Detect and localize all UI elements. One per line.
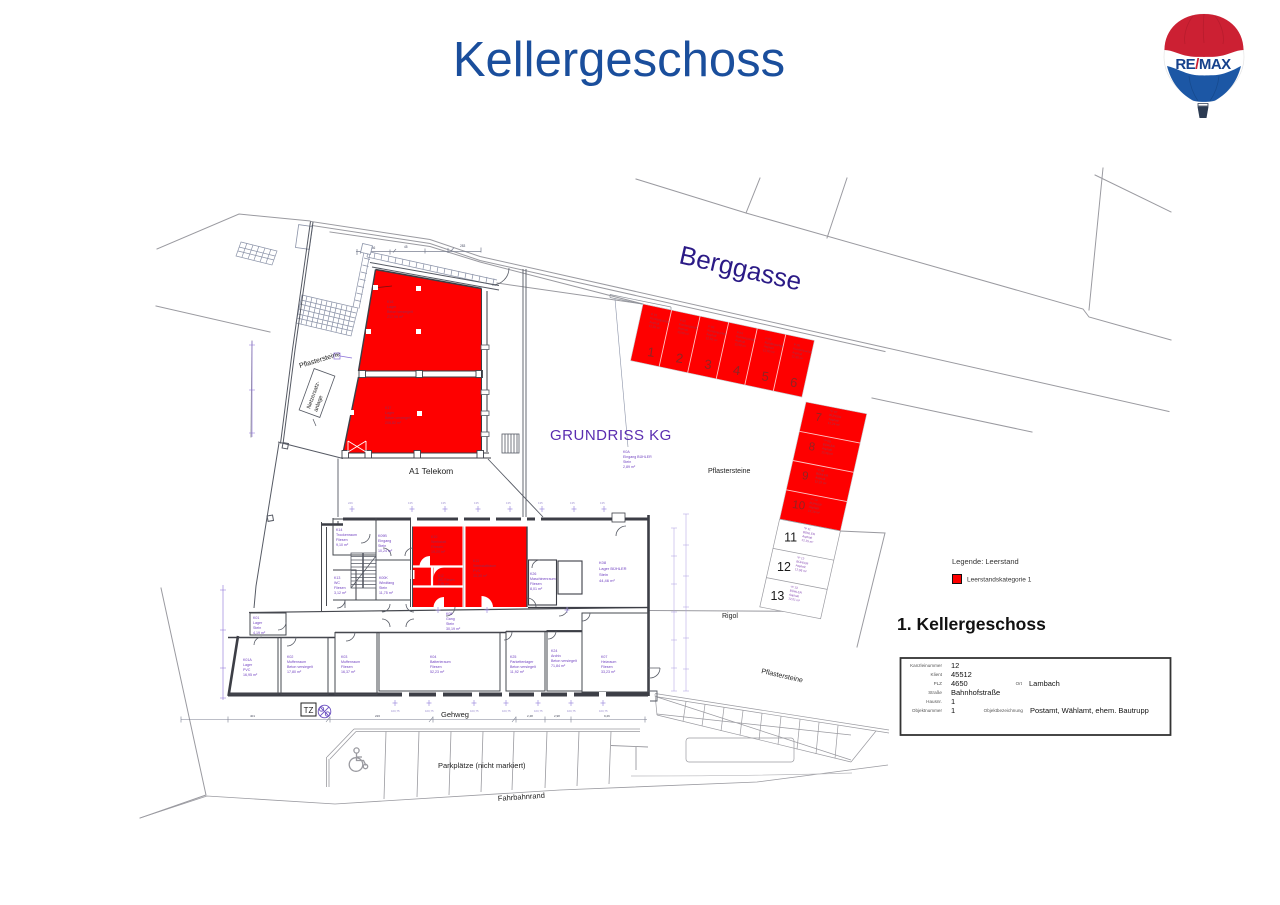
svg-text:Bahnhofstraße: Bahnhofstraße bbox=[951, 688, 1000, 697]
svg-text:12: 12 bbox=[777, 560, 791, 574]
svg-text:1: 1 bbox=[951, 697, 955, 706]
svg-text:10,24 m²: 10,24 m² bbox=[378, 549, 393, 553]
svg-text:Stein: Stein bbox=[446, 622, 454, 626]
svg-text:283: 283 bbox=[460, 244, 466, 248]
svg-text:Trockenraum: Trockenraum bbox=[336, 533, 357, 537]
svg-text:Fliesen: Fliesen bbox=[334, 586, 346, 590]
svg-text:Beton versiegelt: Beton versiegelt bbox=[551, 659, 577, 663]
svg-text:Stein: Stein bbox=[379, 586, 387, 590]
svg-text:3,12 m²: 3,12 m² bbox=[334, 591, 347, 595]
svg-text:Muffenraum: Muffenraum bbox=[341, 660, 360, 664]
svg-text:226: 226 bbox=[375, 714, 380, 718]
svg-text:K09B: K09B bbox=[378, 534, 387, 538]
svg-text:206,82 m²: 206,82 m² bbox=[385, 421, 402, 425]
svg-text:Leerstandskategorie 1: Leerstandskategorie 1 bbox=[967, 577, 1032, 584]
svg-text:17,80 m²: 17,80 m² bbox=[287, 670, 302, 674]
svg-text:45512: 45512 bbox=[951, 670, 972, 679]
svg-text:K05: K05 bbox=[446, 612, 452, 616]
svg-text:Pflastersteine: Pflastersteine bbox=[708, 468, 751, 475]
svg-text:Legende: Leerstand: Legende: Leerstand bbox=[952, 557, 1019, 566]
svg-text:Maschinenraum: Maschinenraum bbox=[530, 577, 556, 581]
svg-text:Werkstattraum: Werkstattraum bbox=[473, 564, 496, 568]
svg-text:13: 13 bbox=[770, 589, 784, 603]
svg-text:4,19 m²: 4,19 m² bbox=[253, 631, 266, 635]
svg-text:Parkplätze (nicht markiert): Parkplätze (nicht markiert) bbox=[438, 761, 526, 770]
svg-text:11,75 m²: 11,75 m² bbox=[379, 591, 394, 595]
svg-text:Gehweg: Gehweg bbox=[441, 710, 469, 719]
svg-text:16,95 m²: 16,95 m² bbox=[243, 673, 258, 677]
svg-text:45: 45 bbox=[404, 245, 408, 249]
svg-text:10: 10 bbox=[791, 499, 805, 513]
svg-text:Beton versiegelt: Beton versiegelt bbox=[287, 665, 313, 669]
svg-text:100,75: 100,75 bbox=[502, 709, 511, 713]
svg-text:Beton versiegelt: Beton versiegelt bbox=[385, 416, 411, 420]
svg-text:100,75: 100,75 bbox=[391, 709, 400, 713]
svg-text:Eingang BÜHLER: Eingang BÜHLER bbox=[623, 455, 652, 459]
svg-text:Ort: Ort bbox=[1016, 681, 1023, 686]
svg-text:Stein: Stein bbox=[253, 626, 261, 630]
svg-text:Lager: Lager bbox=[387, 305, 397, 309]
svg-text:Lager BÜHLER: Lager BÜHLER bbox=[599, 566, 627, 571]
svg-text:11: 11 bbox=[784, 531, 797, 545]
svg-text:11,92 m²: 11,92 m² bbox=[510, 670, 525, 674]
svg-text:Postamt, Wählamt, ehem. Bautru: Postamt, Wählamt, ehem. Bautrupp bbox=[1030, 706, 1149, 715]
svg-text:135: 135 bbox=[441, 501, 446, 505]
svg-text:Fliesen: Fliesen bbox=[430, 665, 442, 669]
svg-text:A1 Telekom: A1 Telekom bbox=[409, 466, 453, 476]
svg-text:Stein: Stein bbox=[378, 544, 386, 548]
svg-text:100,75: 100,75 bbox=[534, 709, 543, 713]
svg-text:Kellergeschoss: Kellergeschoss bbox=[453, 33, 785, 87]
svg-text:TZ: TZ bbox=[304, 706, 314, 715]
svg-text:PVC: PVC bbox=[473, 569, 481, 573]
svg-text:Archiv: Archiv bbox=[551, 654, 561, 658]
svg-text:K03: K03 bbox=[341, 655, 347, 659]
svg-text:Fliesen: Fliesen bbox=[601, 665, 613, 669]
svg-text:52,23 m²: 52,23 m² bbox=[430, 670, 445, 674]
svg-text:Objektnummer: Objektnummer bbox=[912, 708, 943, 713]
svg-text:30,19 m²: 30,19 m² bbox=[446, 627, 461, 631]
svg-text:401: 401 bbox=[250, 714, 255, 718]
svg-text:Rigol: Rigol bbox=[722, 613, 738, 620]
svg-text:100,75: 100,75 bbox=[567, 709, 576, 713]
svg-text:Muffenraum: Muffenraum bbox=[287, 660, 306, 664]
svg-text:Windfang: Windfang bbox=[379, 581, 394, 585]
svg-text:K11: K11 bbox=[473, 559, 479, 563]
svg-text:Lager: Lager bbox=[243, 663, 253, 667]
svg-text:Beton versiegelt: Beton versiegelt bbox=[387, 310, 413, 314]
svg-text:135: 135 bbox=[570, 501, 575, 505]
svg-text:K16: K16 bbox=[387, 300, 393, 304]
svg-text:135: 135 bbox=[474, 501, 479, 505]
svg-text:1. Kellergeschoss: 1. Kellergeschoss bbox=[897, 614, 1046, 634]
svg-text:Werkstatt: Werkstatt bbox=[431, 540, 446, 544]
svg-text:8,01 m²: 8,01 m² bbox=[530, 587, 543, 591]
svg-text:Lager: Lager bbox=[253, 621, 263, 625]
svg-text:K25: K25 bbox=[510, 655, 516, 659]
svg-text:33,30 m²: 33,30 m² bbox=[473, 574, 488, 578]
svg-text:44,46 m²: 44,46 m² bbox=[599, 578, 615, 583]
svg-text:Straße: Straße bbox=[928, 690, 942, 695]
svg-text:1: 1 bbox=[951, 706, 955, 715]
svg-text:K02: K02 bbox=[287, 655, 293, 659]
svg-text:135: 135 bbox=[600, 501, 605, 505]
svg-text:2,95 m²: 2,95 m² bbox=[438, 582, 449, 586]
svg-text:Kanzleinummer: Kanzleinummer bbox=[910, 663, 942, 668]
svg-text:Objektbezeichnung: Objektbezeichnung bbox=[984, 708, 1024, 713]
svg-text:2,89 m²: 2,89 m² bbox=[623, 465, 636, 469]
svg-text:100,75: 100,75 bbox=[470, 709, 479, 713]
svg-text:19,20 m²: 19,20 m² bbox=[431, 550, 446, 554]
svg-text:PLZ: PLZ bbox=[934, 681, 943, 686]
svg-text:K00K: K00K bbox=[379, 576, 388, 580]
svg-text:16,37 m²: 16,37 m² bbox=[341, 670, 356, 674]
svg-text:K24: K24 bbox=[551, 649, 557, 653]
svg-text:135: 135 bbox=[538, 501, 543, 505]
svg-text:K13: K13 bbox=[334, 576, 340, 580]
svg-text:Fliesen: Fliesen bbox=[530, 582, 542, 586]
svg-text:249: 249 bbox=[348, 501, 353, 505]
svg-text:K0A: K0A bbox=[623, 450, 630, 454]
svg-text:Klient: Klient bbox=[931, 672, 943, 677]
svg-text:Eingang: Eingang bbox=[378, 539, 391, 543]
svg-text:Fliesen: Fliesen bbox=[336, 538, 348, 542]
svg-text:K04: K04 bbox=[430, 655, 436, 659]
svg-text:K17: K17 bbox=[385, 406, 391, 410]
svg-text:K26: K26 bbox=[530, 572, 536, 576]
svg-text:Stein: Stein bbox=[599, 572, 608, 577]
svg-text:33,23 m²: 33,23 m² bbox=[601, 670, 616, 674]
svg-text:K14: K14 bbox=[336, 528, 342, 532]
svg-text:Lambach: Lambach bbox=[1029, 679, 1060, 688]
svg-text:K01: K01 bbox=[253, 616, 259, 620]
svg-text:4650: 4650 bbox=[951, 679, 968, 688]
svg-text:135: 135 bbox=[506, 501, 511, 505]
svg-text:RE/MAX: RE/MAX bbox=[1175, 56, 1231, 73]
svg-text:2,98: 2,98 bbox=[554, 714, 560, 718]
svg-text:K08: K08 bbox=[599, 560, 607, 565]
svg-text:9,26: 9,26 bbox=[604, 714, 610, 718]
svg-text:Fliesen: Fliesen bbox=[341, 665, 353, 669]
svg-text:Parkettenlager: Parkettenlager bbox=[510, 660, 534, 664]
svg-text:Stein: Stein bbox=[623, 460, 631, 464]
svg-text:PVC: PVC bbox=[243, 668, 251, 672]
svg-text:WC: WC bbox=[334, 581, 340, 585]
svg-text:K07: K07 bbox=[601, 655, 607, 659]
svg-text:Lager: Lager bbox=[385, 411, 395, 415]
svg-text:Batterieraum: Batterieraum bbox=[430, 660, 451, 664]
svg-text:GRUNDRISS KG: GRUNDRISS KG bbox=[550, 427, 672, 444]
svg-text:2,48: 2,48 bbox=[527, 714, 533, 718]
svg-text:Hausnr.: Hausnr. bbox=[926, 699, 942, 704]
svg-text:71,84 m²: 71,84 m² bbox=[551, 664, 566, 668]
svg-text:100,75: 100,75 bbox=[599, 709, 608, 713]
svg-text:Heizraum: Heizraum bbox=[601, 660, 616, 664]
svg-text:217,95 m²: 217,95 m² bbox=[387, 315, 404, 319]
svg-text:12: 12 bbox=[951, 661, 959, 670]
svg-text:Fliesen: Fliesen bbox=[431, 545, 443, 549]
svg-text:K01A: K01A bbox=[243, 658, 252, 662]
svg-text:9,10 m²: 9,10 m² bbox=[336, 543, 349, 547]
svg-text:Beton versiegelt: Beton versiegelt bbox=[510, 665, 536, 669]
svg-text:Gang: Gang bbox=[446, 617, 455, 621]
svg-text:K10: K10 bbox=[431, 535, 437, 539]
svg-text:135: 135 bbox=[408, 501, 413, 505]
svg-text:100,75: 100,75 bbox=[425, 709, 434, 713]
